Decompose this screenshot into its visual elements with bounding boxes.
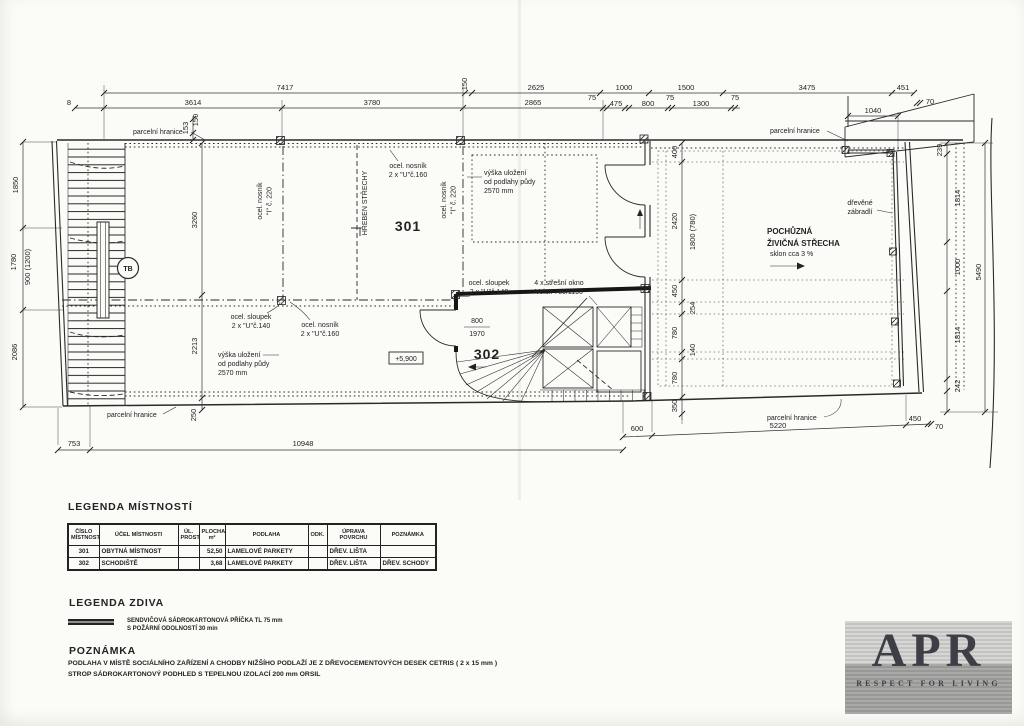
dim-label: 70 xyxy=(926,97,934,106)
steel-beam-label: ocel. nosník xyxy=(389,163,427,170)
ridge-label: HŘEBEN STŘECHY xyxy=(360,170,369,235)
dim-label: 1040 xyxy=(865,106,882,115)
note-line1: PODLAHA V MÍSTĚ SOCIÁLNÍHO ZAŘÍZENÍ A CH… xyxy=(68,659,518,670)
dim-label: 2865 xyxy=(525,98,542,107)
parcel-boundary-label: parcelní hranice xyxy=(770,128,820,135)
cell: DŘEV. SCHODY xyxy=(380,558,436,571)
col-header: PLOCHA m² xyxy=(199,524,225,546)
room-legend-table: ČÍSLO MÍSTNOSTI ÚČEL MÍSTNOSTI ÚL. PROST… xyxy=(67,523,437,571)
wall-legend-title: LEGENDA ZDIVA xyxy=(69,597,164,609)
dim-label: 254 xyxy=(688,302,697,315)
col-header: POZNÁMKA xyxy=(380,524,436,546)
dim-label: 450 xyxy=(909,414,922,423)
scanned-floor-plan-sheet: 7417 150 2625 1000 1500 3475 451 8 3614 … xyxy=(0,0,1024,726)
survey-point-label: TB xyxy=(123,266,132,273)
cell: LAMELOVÉ PARKETY xyxy=(225,546,308,558)
roof-hatch-area xyxy=(68,143,139,405)
terrace-label: ŽIVIČNÁ STŘECHA xyxy=(767,239,840,248)
col-header: ÚČEL MÍSTNOSTI xyxy=(99,524,178,546)
leader-lines xyxy=(163,131,892,417)
room-number-302: 302 xyxy=(474,346,500,362)
dim-label: 900 (1200) xyxy=(23,248,32,285)
attic-height-label: 2570 mm xyxy=(218,370,247,377)
dim-label: 5490 xyxy=(974,264,983,281)
dim-label: 242 xyxy=(953,380,962,393)
dim-label: 3260 xyxy=(190,212,199,229)
dim-label: 1000 xyxy=(616,83,633,92)
attic-height-label: 2570 mm xyxy=(484,188,513,195)
col-header: ÚL. PROST. xyxy=(178,524,199,546)
dim-label: 800 xyxy=(642,99,655,108)
cell: DŘEV. LIŠTA xyxy=(327,558,380,571)
dim-label: 600 xyxy=(631,424,644,433)
table-header-row: ČÍSLO MÍSTNOSTI ÚČEL MÍSTNOSTI ÚL. PROST… xyxy=(68,524,436,546)
dim-label: 2420 xyxy=(670,213,679,230)
dim-label: 5220 xyxy=(770,421,787,430)
dim-label: 239 xyxy=(935,144,944,157)
dim-label: 75 xyxy=(588,93,596,102)
steel-beam-label: ocel. nosník xyxy=(301,322,339,329)
dim-label: 450 xyxy=(670,285,679,298)
partition-symbol xyxy=(68,619,114,625)
dim-label: 1814 xyxy=(953,190,962,207)
dim-label: 75 xyxy=(666,93,674,102)
col-header: ČÍSLO MÍSTNOSTI xyxy=(68,524,99,546)
wall-legend-line1: SENDVIČOVÁ SÁDROKARTONOVÁ PŘÍČKA TL 75 m… xyxy=(127,617,283,625)
cell: 301 xyxy=(68,546,99,558)
attic-height-label: výška uložení xyxy=(484,170,526,177)
dim-label: 350 xyxy=(670,400,679,413)
parcel-boundary-label: parcelní hranice xyxy=(133,129,183,136)
steel-beam-label: "I" č. 220 xyxy=(267,187,274,215)
dim-label: 10948 xyxy=(293,439,314,448)
dim-label: 1000 xyxy=(953,259,962,276)
elevation-label: +5,900 xyxy=(395,356,417,363)
note-line2: STROP SÁDROKARTONOVÝ PODHLED S TEPELNOU … xyxy=(68,670,518,681)
note-text: PODLAHA V MÍSTĚ SOCIÁLNÍHO ZAŘÍZENÍ A CH… xyxy=(68,659,518,681)
dim-label: 475 xyxy=(610,99,623,108)
logo-tagline: RESPECT FOR LIVING xyxy=(845,679,1012,688)
attic-height-label: od podlahy půdy xyxy=(218,360,270,368)
dim-label: 75 xyxy=(731,93,739,102)
plan-annotations: parcelní hranice parcelní hranice parcel… xyxy=(107,128,873,422)
dim-label: 780 xyxy=(670,327,679,340)
steel-beam-label: 2 x "U"č.160 xyxy=(389,172,428,179)
dim-label: 250 xyxy=(189,409,198,422)
dim-label: 8 xyxy=(67,98,71,107)
steel-beam-label: ocel. nosník xyxy=(441,181,448,219)
steel-beam-label: 2 x "U"č.160 xyxy=(301,331,340,338)
cell: 3,68 xyxy=(199,558,225,571)
steel-column-label: 2 x "U"č.140 xyxy=(470,289,509,296)
dim-label: 3475 xyxy=(799,83,816,92)
steel-column-label: ocel. sloupek xyxy=(469,280,510,287)
skylights xyxy=(543,307,642,392)
dim-label: 1500 xyxy=(678,83,695,92)
dim-label: 1780 xyxy=(9,254,18,271)
col-header: ÚPRAVA POVRCHU xyxy=(327,524,380,546)
dim-label: 400 xyxy=(670,146,679,159)
dim-label: 140 xyxy=(688,344,697,357)
dim-label: 3614 xyxy=(185,98,202,107)
steel-column-label: 2 x "U"č.140 xyxy=(232,323,271,330)
steel-bearing-plates xyxy=(277,135,901,401)
steel-beam-label: "I" č. 220 xyxy=(451,186,458,214)
table-row: 301 OBYTNÁ MÍSTNOST 52,50 LAMELOVÉ PARKE… xyxy=(68,546,436,558)
apr-logo: APR RESPECT FOR LIVING xyxy=(845,621,1012,714)
railing-label: zábradlí xyxy=(848,209,873,216)
dim-label: 1300 xyxy=(693,99,710,108)
cell xyxy=(308,558,327,571)
dim-label: 150 xyxy=(191,114,200,127)
attic-height-label: výška uložení xyxy=(218,352,260,359)
terrace-label: POCHŮZNÁ xyxy=(767,226,813,236)
steel-beam-label: ocel. nosník xyxy=(257,182,264,220)
table-row: 302 SCHODIŠTĚ 3,68 LAMELOVÉ PARKETY DŘEV… xyxy=(68,558,436,571)
railing-label: dřevěné xyxy=(847,200,872,207)
dim-label: 1814 xyxy=(953,327,962,344)
attic-height-label: od podlahy půdy xyxy=(484,178,536,186)
skylight-label: Velux 780/1190 xyxy=(535,289,583,296)
dim-label: 753 xyxy=(68,439,81,448)
dim-label: 2086 xyxy=(10,344,19,361)
cell xyxy=(308,546,327,558)
terrace-slope-label: sklon cca 3 % xyxy=(770,251,813,258)
parcel-boundary-label: parcelní hranice xyxy=(767,415,817,422)
skylight-label: 4 x střešní okno xyxy=(534,280,584,287)
door-width-label: 800 xyxy=(471,318,483,325)
cell: OBYTNÁ MÍSTNOST xyxy=(99,546,178,558)
dim-label: 7417 xyxy=(277,83,294,92)
note-title: POZNÁMKA xyxy=(69,645,136,657)
cell: 302 xyxy=(68,558,99,571)
cell xyxy=(380,546,436,558)
dim-label: 1850 xyxy=(11,177,20,194)
dim-label: 70 xyxy=(935,422,943,431)
dim-label: 2213 xyxy=(190,338,199,355)
cell: 52,50 xyxy=(199,546,225,558)
cell: DŘEV. LIŠTA xyxy=(327,546,380,558)
cell: LAMELOVÉ PARKETY xyxy=(225,558,308,571)
dim-label: 780 xyxy=(670,372,679,385)
parcel-boundary-label: parcelní hranice xyxy=(107,412,157,419)
cell: SCHODIŠTĚ xyxy=(99,558,178,571)
col-header: ODK. xyxy=(308,524,327,546)
door-height-label: 1970 xyxy=(469,331,485,338)
col-header: PODLAHA xyxy=(225,524,308,546)
dim-label: 150 xyxy=(460,78,469,91)
wall-legend-line2: S POŽÁRNÍ ODOLNOSTÍ 30 min xyxy=(127,625,283,633)
room-number-301: 301 xyxy=(395,218,421,234)
dim-label: 3780 xyxy=(364,98,381,107)
cell xyxy=(178,558,199,571)
steel-column-label: ocel. sloupek xyxy=(231,314,272,321)
wall-legend-item: SENDVIČOVÁ SÁDROKARTONOVÁ PŘÍČKA TL 75 m… xyxy=(127,617,283,633)
room-legend-title: LEGENDA MÍSTNOSTÍ xyxy=(68,501,193,513)
dim-label: 451 xyxy=(897,83,910,92)
dim-label: 1800 (780) xyxy=(688,213,697,250)
logo-name: APR xyxy=(845,623,1012,678)
cell xyxy=(178,546,199,558)
dim-label: 2625 xyxy=(528,83,545,92)
